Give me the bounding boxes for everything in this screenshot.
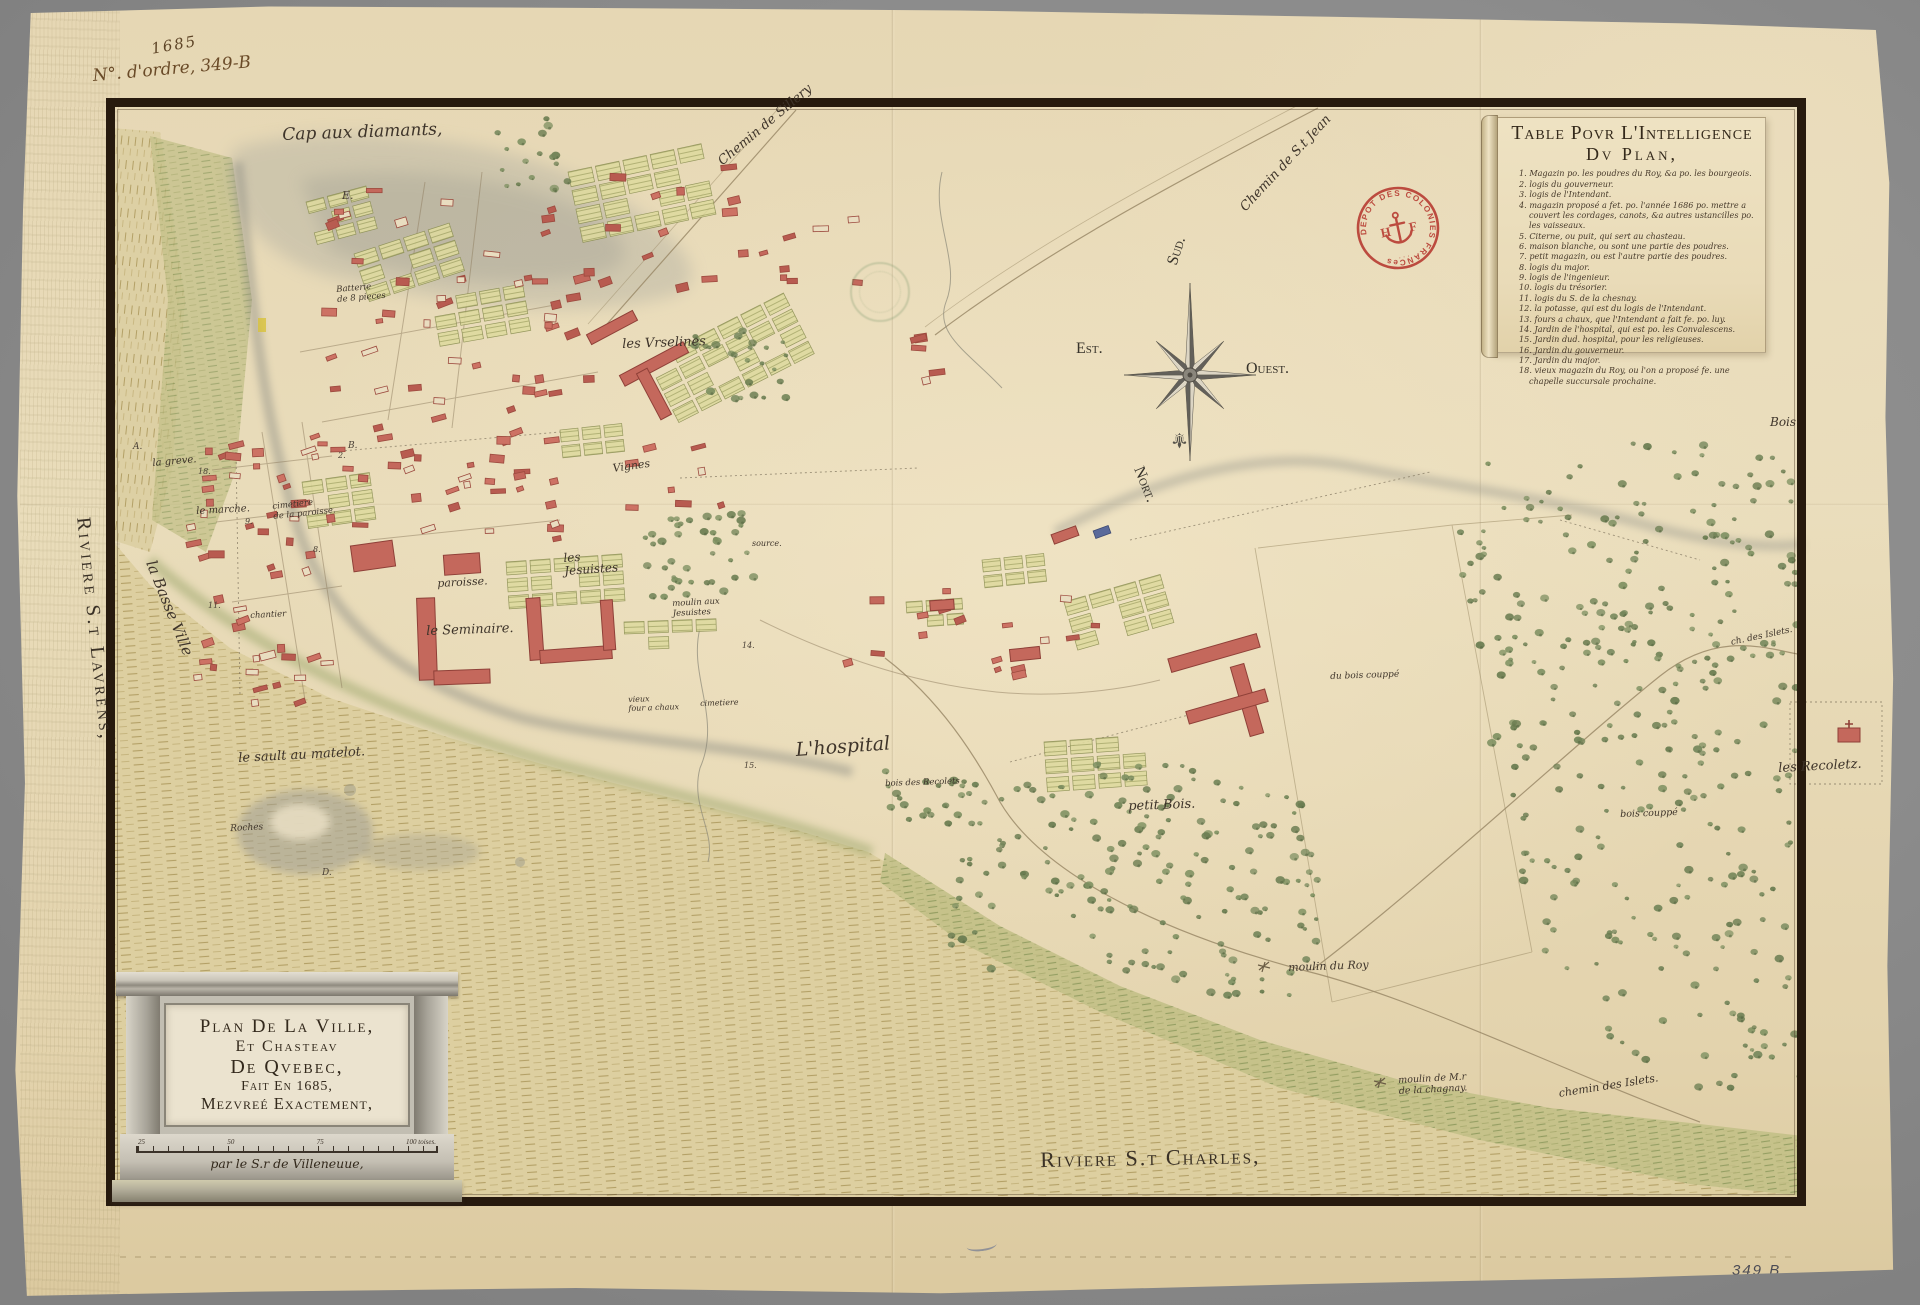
compass-east-label: Est. — [1076, 340, 1103, 358]
legend-item: Jardin de l'hospital, qui est po. les Co… — [1519, 324, 1757, 334]
legend-item: logis du trésorier. — [1519, 282, 1757, 292]
legend-title: Table Povr L'Intelligence — [1507, 124, 1757, 144]
green-ghost-stamp — [850, 262, 910, 322]
cartouche-panel: Plan De La Ville, Et Chasteav De Qvebec,… — [164, 1003, 410, 1127]
map-title-line2: Et Chasteav — [235, 1038, 338, 1055]
legend-item: logis du S. de la chesnay. — [1519, 293, 1757, 303]
stamp-letter-f: F — [1408, 218, 1419, 234]
legend-item: Jardin du gouverneur. — [1519, 345, 1757, 355]
legend-title-line2: Dv Plan, — [1507, 144, 1757, 165]
legend-item: fours a chaux, que l'Intendant a fait fe… — [1519, 314, 1757, 324]
legend-item: petit magazin, ou est l'autre partie des… — [1519, 251, 1757, 261]
moulin-du-roy-icon — [1258, 962, 1270, 972]
fleur-de-lis-icon: ⚜ — [1170, 428, 1189, 452]
legend-item: Magazin po. les poudres du Roy, &a po. l… — [1519, 168, 1757, 178]
scale-bar — [136, 1146, 438, 1153]
legend-item: Citerne, ou puit, qui sert au chasteau. — [1519, 231, 1757, 241]
legend-list: Magazin po. les poudres du Roy, &a po. l… — [1507, 168, 1757, 386]
legend-item: maison blanche, ou sont une partie des p… — [1519, 241, 1757, 251]
legend-item: Jardin du major. — [1519, 355, 1757, 365]
legend-item: vieux magazin du Roy, ou l'on a proposé … — [1519, 365, 1757, 386]
legend-panel: Table Povr L'Intelligence Dv Plan, Magaz… — [1492, 117, 1766, 353]
cartouche-pilaster-left — [126, 996, 160, 1134]
legend-item: logis du gouverneur. — [1519, 179, 1757, 189]
dotted-lines — [236, 432, 1882, 784]
map-sheet: Cap aux diamants,Chemin de SilleryChemin… — [0, 0, 1920, 1305]
yellow-highlight-building — [258, 318, 266, 332]
legend-item: logis du major. — [1519, 262, 1757, 272]
legend-item: magazin proposé a fet. po. l'année 1686 … — [1519, 200, 1757, 231]
north-bluff — [1055, 461, 1803, 546]
cartouche-author: par le S.r de Villeneuue, — [136, 1156, 438, 1171]
legend-item: Jardin dud. hospital, pour les religieus… — [1519, 334, 1757, 344]
cartouche-pilaster-right — [414, 996, 448, 1134]
legend-item: logis de l'ingenieur. — [1519, 272, 1757, 282]
red-library-stamp: DEPOT DES COLONIES FRANCes · · · H F — [1348, 178, 1448, 278]
map-title-line4: Fait En 1685, — [241, 1079, 333, 1094]
map-title-line1: Plan De La Ville, — [200, 1017, 374, 1038]
annotation-corner-number: 349 B — [1732, 1262, 1781, 1279]
title-cartouche: Plan De La Ville, Et Chasteav De Qvebec,… — [126, 972, 448, 1202]
compass-rose — [1124, 283, 1256, 461]
map-title-line3: De Qvebec, — [230, 1057, 343, 1079]
cartouche-cornice — [116, 972, 458, 996]
roches-islet-top — [270, 804, 330, 840]
roches-tail — [360, 834, 480, 870]
recolets-building — [1838, 720, 1860, 742]
compass-west-label: Ouest. — [1246, 360, 1289, 378]
legend-item: logis de l'Intendant. — [1519, 189, 1757, 199]
legend-item: la potasse, qui est du logis de l'Intend… — [1519, 303, 1757, 313]
blue-building — [1093, 526, 1111, 539]
cartouche-base — [112, 1180, 462, 1202]
cartouche-plinth: 25 50 75 100 toises. par le S.r de Ville… — [120, 1134, 454, 1180]
scale-labels: 25 50 75 100 toises. — [136, 1138, 438, 1146]
map-title-line5: Mezvreé Exactement, — [201, 1095, 373, 1113]
